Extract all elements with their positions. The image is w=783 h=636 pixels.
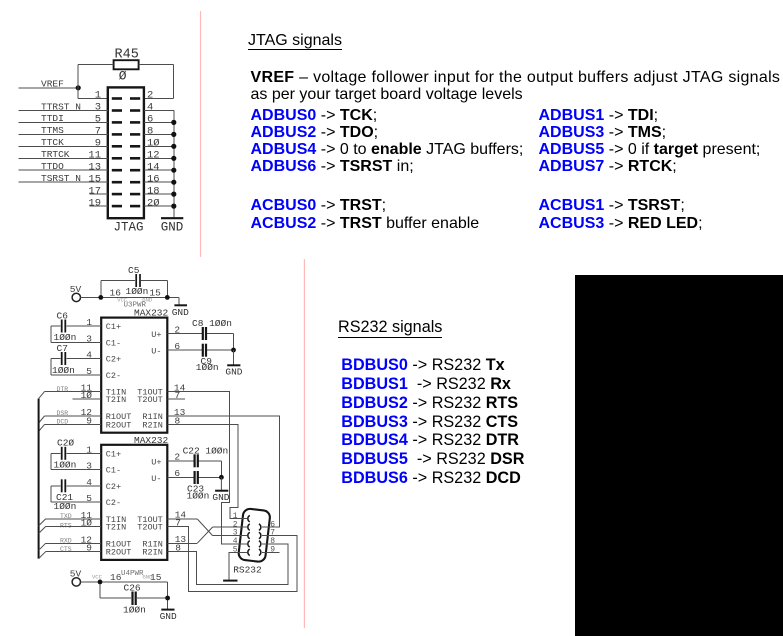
svg-text:GND: GND <box>225 367 242 378</box>
svg-text:11: 11 <box>88 150 101 162</box>
svg-text:12: 12 <box>147 150 160 162</box>
svg-text:T2IN: T2IN <box>106 395 126 405</box>
svg-text:C5: C5 <box>128 265 140 276</box>
svg-text:9: 9 <box>95 138 101 150</box>
svg-text:C2+: C2+ <box>106 355 121 365</box>
svg-text:Ø: Ø <box>119 69 127 84</box>
svg-text:GND: GND <box>212 492 229 503</box>
svg-text:R2OUT: R2OUT <box>106 420 132 430</box>
svg-text:8: 8 <box>147 126 153 138</box>
svg-text:U4PWR: U4PWR <box>121 570 144 578</box>
svg-text:VCC: VCC <box>92 573 103 580</box>
svg-text:9: 9 <box>270 546 275 555</box>
svg-text:C2-: C2- <box>106 498 121 508</box>
svg-text:15: 15 <box>88 173 101 185</box>
svg-text:5: 5 <box>95 114 101 126</box>
svg-text:U+: U+ <box>151 457 161 467</box>
svg-text:5: 5 <box>86 493 92 504</box>
svg-text:1ØØn: 1ØØn <box>187 491 210 502</box>
svg-text:C2+: C2+ <box>106 482 121 492</box>
svg-text:19: 19 <box>88 197 101 209</box>
svg-text:7: 7 <box>95 126 101 138</box>
svg-text:U-: U- <box>151 474 161 484</box>
svg-text:T2IN: T2IN <box>106 523 126 533</box>
svg-text:14: 14 <box>147 161 160 173</box>
svg-text:1ØØn: 1ØØn <box>54 332 77 343</box>
svg-text:16: 16 <box>147 173 160 185</box>
svg-text:3: 3 <box>95 102 101 114</box>
svg-text:C7: C7 <box>57 343 68 354</box>
svg-text:1ØØn: 1ØØn <box>196 362 219 373</box>
svg-text:T2OUT: T2OUT <box>137 523 163 533</box>
svg-text:1ØØn: 1ØØn <box>123 605 146 616</box>
svg-text:1ØØn: 1ØØn <box>52 365 75 376</box>
svg-text:2: 2 <box>147 90 153 102</box>
svg-text:4: 4 <box>147 102 153 114</box>
svg-text:C1-: C1- <box>106 338 121 348</box>
svg-text:5: 5 <box>233 546 238 555</box>
svg-text:R2OUT: R2OUT <box>106 548 132 558</box>
svg-text:1ØØn: 1ØØn <box>54 460 77 471</box>
svg-text:R2IN: R2IN <box>142 420 162 430</box>
svg-text:C1-: C1- <box>106 466 121 476</box>
svg-text:1: 1 <box>86 317 92 328</box>
svg-text:GND: GND <box>143 573 154 580</box>
svg-text:1Ø: 1Ø <box>147 138 160 150</box>
svg-text:TSRST_N: TSRST_N <box>41 173 81 184</box>
svg-text:4: 4 <box>86 477 92 488</box>
svg-text:TTDI: TTDI <box>41 113 64 124</box>
svg-text:GND: GND <box>172 307 189 318</box>
svg-text:TTMS: TTMS <box>41 125 64 136</box>
svg-text:1: 1 <box>86 444 92 455</box>
svg-text:C1+: C1+ <box>106 322 121 332</box>
svg-text:17: 17 <box>88 185 101 197</box>
svg-text:RS232: RS232 <box>233 565 262 576</box>
svg-text:C2-: C2- <box>106 371 121 381</box>
svg-text:R2IN: R2IN <box>142 548 162 558</box>
svg-text:16: 16 <box>110 572 122 583</box>
svg-text:C6: C6 <box>57 311 69 322</box>
svg-text:TRTCK: TRTCK <box>41 149 70 160</box>
svg-text:5: 5 <box>86 366 92 377</box>
svg-text:C2Ø: C2Ø <box>57 438 74 449</box>
svg-text:3: 3 <box>86 461 92 472</box>
svg-text:18: 18 <box>147 185 160 197</box>
svg-text:C1+: C1+ <box>106 449 121 459</box>
svg-text:2Ø: 2Ø <box>147 197 160 209</box>
svg-text:3: 3 <box>86 333 92 344</box>
svg-text:C22 1ØØn: C22 1ØØn <box>183 446 229 457</box>
svg-text:1ØØn: 1ØØn <box>54 501 77 512</box>
svg-text:13: 13 <box>88 161 101 173</box>
svg-text:GND: GND <box>160 611 177 622</box>
svg-text:C26: C26 <box>124 582 141 593</box>
svg-text:U+: U+ <box>151 330 161 340</box>
svg-text:T2OUT: T2OUT <box>137 395 163 405</box>
svg-text:TTRST_N: TTRST_N <box>41 101 81 112</box>
svg-text:4: 4 <box>86 350 92 361</box>
svg-text:GND: GND <box>161 221 184 235</box>
svg-text:TTDO: TTDO <box>41 161 64 172</box>
svg-text:1: 1 <box>95 90 101 102</box>
svg-text:JTAG: JTAG <box>114 221 144 235</box>
svg-text:U-: U- <box>151 347 161 357</box>
svg-text:TTCK: TTCK <box>41 137 64 148</box>
svg-text:C8 1ØØn: C8 1ØØn <box>192 318 232 329</box>
svg-text:6: 6 <box>147 114 153 126</box>
